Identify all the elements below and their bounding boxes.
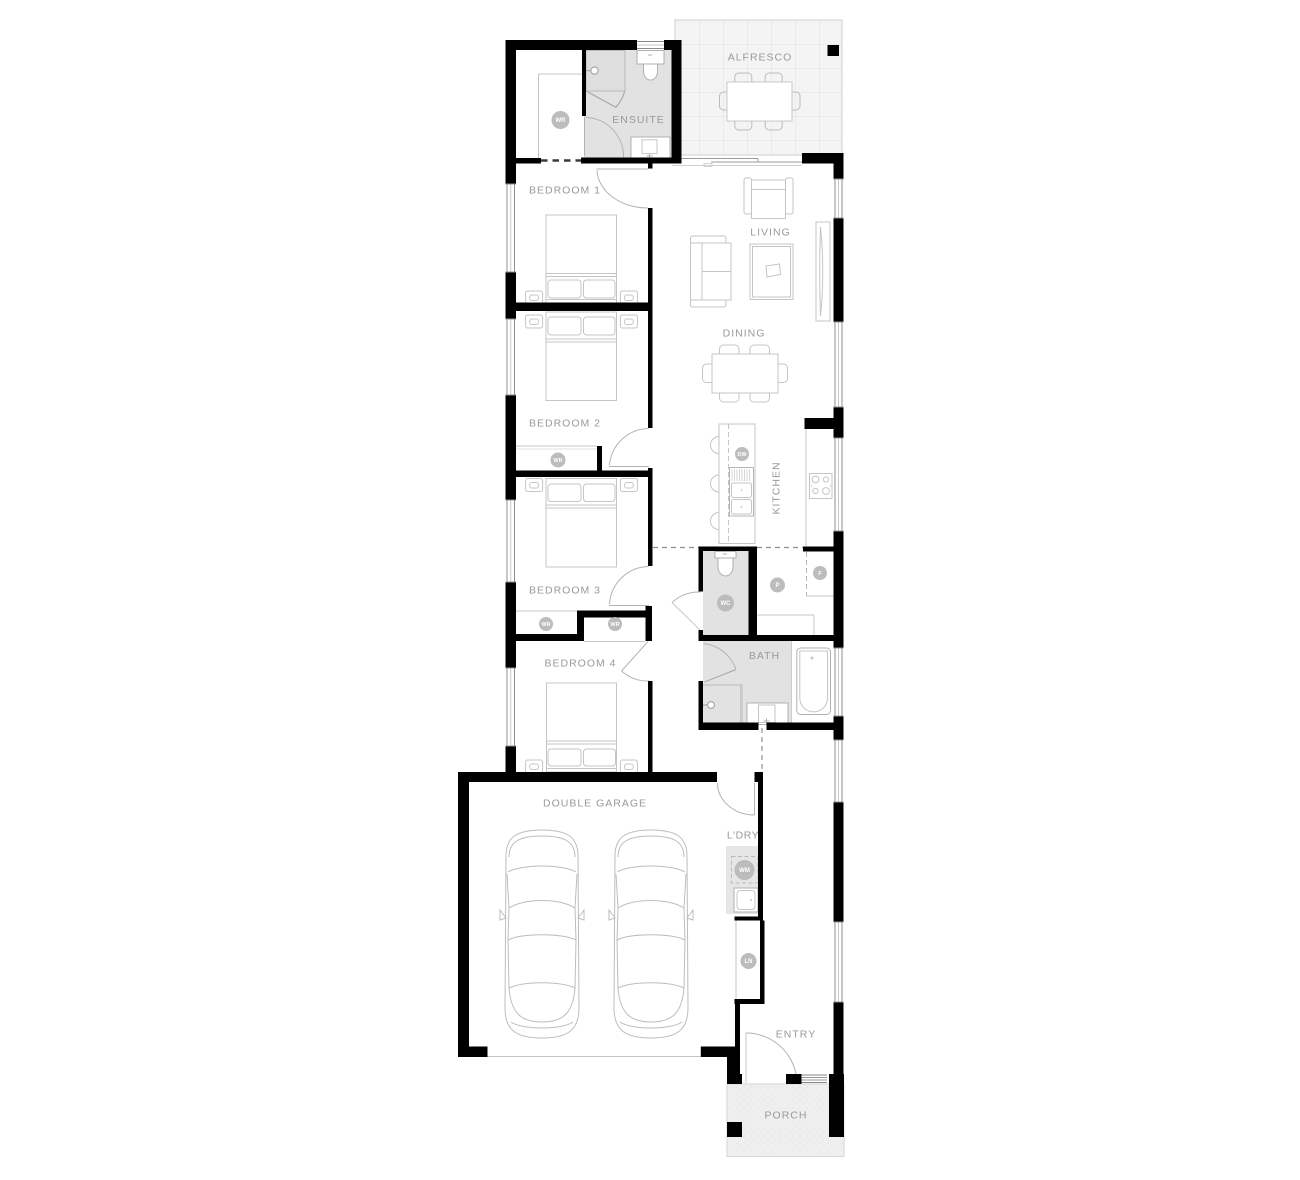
svg-text:WR: WR xyxy=(610,622,619,628)
svg-text:BEDROOM 1: BEDROOM 1 xyxy=(529,185,601,197)
svg-text:BEDROOM 4: BEDROOM 4 xyxy=(544,658,616,670)
svg-text:ENTRY: ENTRY xyxy=(776,1029,816,1041)
svg-text:WR: WR xyxy=(541,622,550,628)
svg-text:BEDROOM 3: BEDROOM 3 xyxy=(529,585,601,597)
svg-text:BEDROOM 2: BEDROOM 2 xyxy=(529,418,601,430)
svg-text:KITCHEN: KITCHEN xyxy=(771,461,783,514)
svg-text:PORCH: PORCH xyxy=(765,1110,808,1122)
svg-text:BATH: BATH xyxy=(749,650,780,662)
svg-text:ENSUITE: ENSUITE xyxy=(612,114,665,126)
svg-text:DINING: DINING xyxy=(723,328,766,340)
svg-text:WC: WC xyxy=(721,601,732,607)
svg-text:WR: WR xyxy=(556,118,567,124)
svg-text:P: P xyxy=(775,583,779,589)
svg-text:WM: WM xyxy=(739,868,750,874)
svg-text:DW: DW xyxy=(737,452,747,458)
svg-text:LN: LN xyxy=(745,959,753,965)
svg-text:L'DRY: L'DRY xyxy=(727,830,759,842)
svg-text:LIVING: LIVING xyxy=(750,227,790,239)
svg-text:DOUBLE GARAGE: DOUBLE GARAGE xyxy=(543,798,647,810)
svg-text:ALFRESCO: ALFRESCO xyxy=(728,52,793,64)
svg-text:WR: WR xyxy=(553,458,562,464)
